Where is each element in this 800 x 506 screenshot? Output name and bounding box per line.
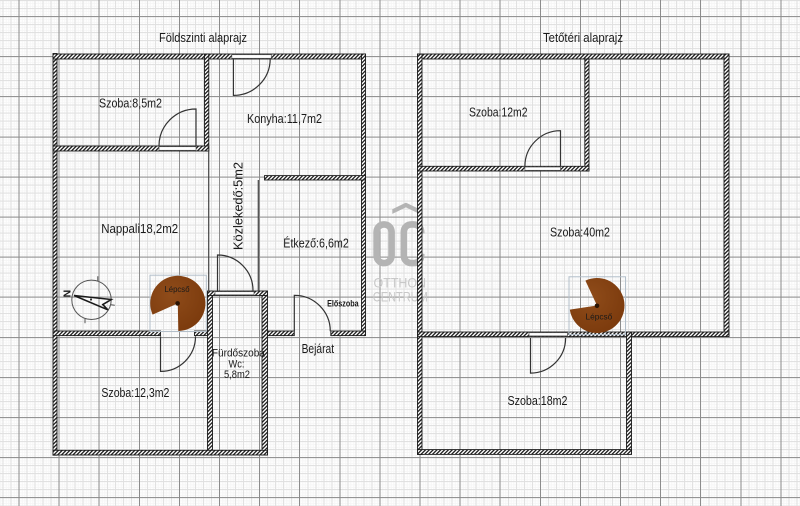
svg-text:Lépcső: Lépcső [165, 285, 191, 294]
svg-text:Bejárat: Bejárat [302, 342, 335, 356]
svg-text:Konyha:11,7m2: Konyha:11,7m2 [247, 112, 322, 126]
svg-text:Szoba:8,5m2: Szoba:8,5m2 [99, 97, 162, 111]
svg-text:Szoba:12,3m2: Szoba:12,3m2 [101, 386, 169, 400]
svg-text:Szoba:40m2: Szoba:40m2 [550, 226, 610, 240]
svg-text:Szoba:18m2: Szoba:18m2 [508, 394, 568, 408]
svg-text:Előszoba: Előszoba [327, 299, 359, 309]
svg-text:N: N [62, 290, 74, 298]
svg-text:Tetőtéri alaprajz: Tetőtéri alaprajz [543, 31, 623, 45]
svg-text:Lépcső: Lépcső [586, 312, 613, 321]
svg-text:Földszinti alaprajz: Földszinti alaprajz [159, 31, 247, 45]
svg-text:Szoba:12m2: Szoba:12m2 [469, 105, 528, 119]
svg-text:Étkező:6,6m2: Étkező:6,6m2 [283, 236, 349, 251]
svg-text:5,8m2: 5,8m2 [224, 369, 250, 381]
svg-text:Nappali18,2m2: Nappali18,2m2 [101, 222, 178, 236]
svg-text:Fürdőszoba: Fürdőszoba [212, 347, 266, 359]
svg-text:Közlekedő:5m2: Közlekedő:5m2 [232, 162, 246, 250]
